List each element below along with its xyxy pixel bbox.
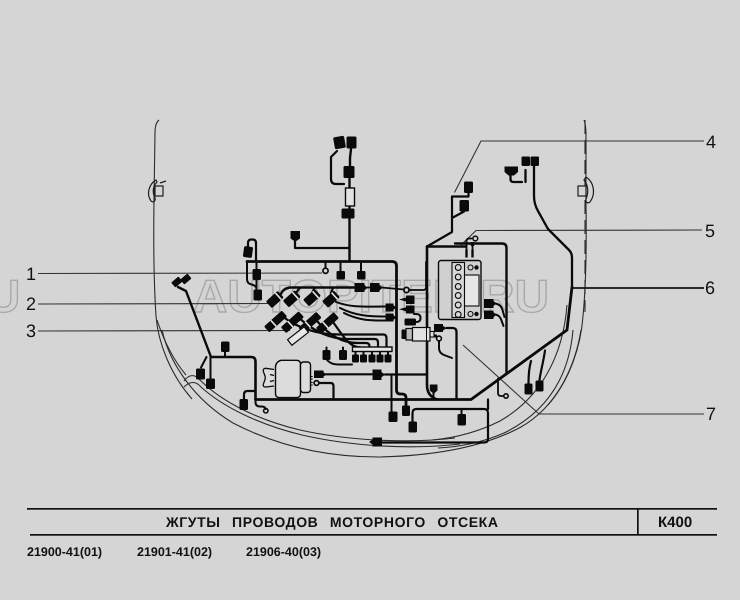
svg-text:ЖГУТЫ ПРОВОДОВ МОТОРНОГО ОТСЕК: ЖГУТЫ ПРОВОДОВ МОТОРНОГО ОТСЕКА (165, 514, 499, 530)
svg-text:1: 1 (26, 264, 36, 284)
svg-text:2: 2 (26, 294, 36, 314)
svg-text:21901-41(02): 21901-41(02) (137, 545, 212, 559)
svg-text:7: 7 (706, 404, 716, 424)
svg-text:К400: К400 (658, 514, 692, 531)
svg-text:4: 4 (706, 132, 716, 152)
svg-text:5: 5 (705, 221, 715, 241)
svg-text:6: 6 (705, 278, 715, 298)
svg-text:3: 3 (26, 321, 36, 341)
svg-text:21906-40(03): 21906-40(03) (246, 545, 321, 559)
svg-text:21900-41(01): 21900-41(01) (27, 545, 102, 559)
svg-text:U: U (0, 270, 20, 322)
